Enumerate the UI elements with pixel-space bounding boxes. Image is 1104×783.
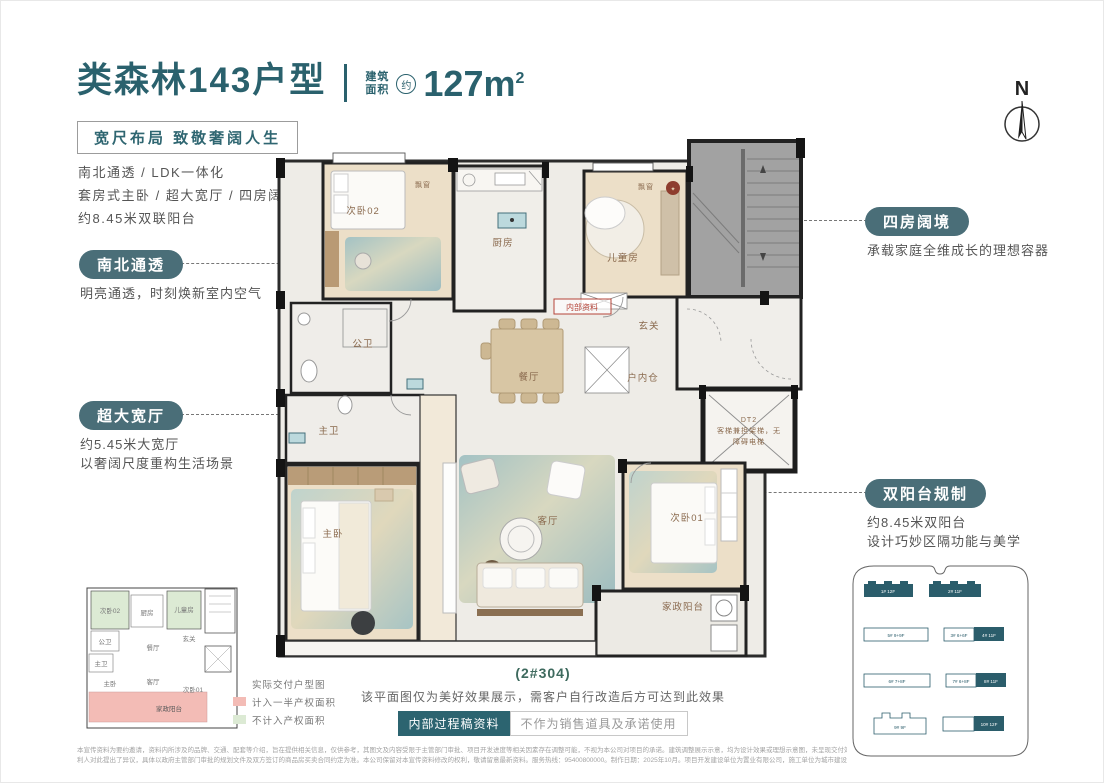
coffee-table bbox=[500, 518, 542, 560]
bay-window-label: 飘窗 bbox=[638, 182, 654, 191]
site-building-10: 10# 12F bbox=[943, 716, 1004, 731]
desc-double-balcony: 约8.45米双阳台 设计巧妙区隔功能与美学 bbox=[867, 513, 1021, 551]
wardrobe bbox=[661, 191, 679, 275]
keyplan-label: 主卧 bbox=[104, 679, 118, 688]
elevator-label-1: DT2 bbox=[741, 417, 757, 424]
chair bbox=[355, 253, 371, 269]
room-dining: 餐厅 bbox=[481, 319, 563, 403]
badge-internal-draft: 内部过程稿资料 bbox=[398, 711, 509, 736]
badge-wide-hall: 超大宽厅 bbox=[79, 401, 183, 430]
keyplan-label: 次卧02 bbox=[100, 606, 121, 615]
dining-table bbox=[491, 329, 563, 393]
desk bbox=[325, 231, 339, 287]
compass-north-label: N bbox=[1015, 78, 1029, 100]
badge-north-south: 南北通透 bbox=[79, 250, 183, 279]
wardrobe bbox=[721, 469, 737, 541]
svg-text:10# 12F: 10# 12F bbox=[981, 722, 998, 727]
room-label-guest-bath: 公卫 bbox=[352, 339, 373, 350]
bay-window-label: 飘窗 bbox=[415, 180, 431, 189]
nightstand bbox=[375, 489, 393, 501]
svg-text:8# 11F: 8# 11F bbox=[984, 679, 998, 684]
badge-four-rooms: 四房阔境 bbox=[865, 207, 969, 236]
key-plan: 次卧02 厨房 儿童房 公卫 餐厅 玄关 主卫 主卧 客厅 次卧01 家政阳台 bbox=[79, 584, 241, 734]
room-label-master-bath: 主卫 bbox=[318, 425, 339, 437]
site-building-3: 3# 6+6F bbox=[944, 628, 974, 641]
keyplan-label: 次卧01 bbox=[183, 685, 204, 694]
room-guest-bath: 公卫 bbox=[291, 303, 391, 393]
internal-material-stamp: 内部资料 bbox=[554, 299, 611, 314]
room-service-balcony: 家政阳台 bbox=[596, 591, 746, 656]
keyplan-label: 餐厅 bbox=[147, 643, 161, 652]
stairwell bbox=[689, 141, 801, 297]
south-ledge bbox=[279, 641, 596, 656]
svg-text:4# 11F: 4# 11F bbox=[982, 633, 996, 638]
site-plan: 1# 12F 2# 11F 5# 9+9F 3# 6+6F 4# 11F 6# … bbox=[844, 553, 1044, 768]
keyplan-stair bbox=[205, 589, 235, 633]
room-label-master: 主卧 bbox=[322, 528, 343, 540]
site-building-2: 2# 11F bbox=[929, 581, 981, 597]
elevator-label-2: 客梯兼担架梯，无 bbox=[717, 426, 781, 435]
toilet bbox=[301, 360, 317, 382]
footer-badges: 内部过程稿资料 不作为销售道具及承诺使用 bbox=[263, 711, 823, 736]
keyplan-label: 主卫 bbox=[95, 659, 109, 668]
site-building-7: 7# 6+8F bbox=[946, 674, 976, 687]
svg-text:9# 9F: 9# 9F bbox=[894, 725, 906, 730]
blanket bbox=[339, 503, 369, 609]
page-title: 类森林143户型 bbox=[77, 59, 326, 103]
desc-wide-hall: 约5.45米大宽厅 以奢阔尺度重构生活场景 bbox=[80, 435, 234, 473]
approx-circle-icon: 约 bbox=[396, 74, 416, 94]
site-building-8: 8# 11F bbox=[976, 673, 1006, 687]
disclaimer-line2: 利人对此提出了异议，具体以政府主管部门审批的规划文件及双方签订的商品房买卖合同约… bbox=[77, 756, 847, 766]
site-building-4: 4# 11F bbox=[974, 627, 1004, 641]
room-label-bedroom2: 次卧02 bbox=[346, 205, 380, 217]
svg-text:6# 7+8F: 6# 7+8F bbox=[889, 679, 906, 684]
room-label-bedroom1: 次卧01 bbox=[670, 512, 704, 524]
washer-icon bbox=[711, 595, 737, 621]
main-floorplan: DT2 客梯兼担架梯，无 障碍电梯 次卧02 飘窗 厨房 bbox=[263, 133, 823, 658]
room-label-storage: 户内仓 bbox=[627, 372, 659, 384]
svg-text:7# 6+8F: 7# 6+8F bbox=[953, 679, 970, 684]
wardrobe bbox=[288, 467, 416, 485]
elevator-shaft: DT2 客梯兼担架梯，无 障碍电梯 bbox=[703, 389, 795, 471]
site-building-9: 9# 9F bbox=[874, 713, 926, 734]
header: 类森林143户型 建筑 面积 约 127m2 bbox=[77, 59, 524, 105]
room-label-kitchen: 厨房 bbox=[492, 237, 513, 249]
bay-window bbox=[333, 153, 405, 163]
title-divider bbox=[344, 64, 347, 102]
legend-swatch-green bbox=[233, 715, 246, 724]
stamp-text: 内部资料 bbox=[566, 302, 598, 312]
keyplan-label: 客厅 bbox=[147, 677, 161, 686]
svg-text:5# 9+9F: 5# 9+9F bbox=[888, 633, 905, 638]
unit-number: (2#304) bbox=[263, 665, 823, 681]
bay-window bbox=[593, 163, 653, 171]
keyplan-label: 玄关 bbox=[183, 634, 197, 643]
tv-console bbox=[443, 463, 456, 613]
site-building-6: 6# 7+8F bbox=[864, 674, 930, 687]
cabinet bbox=[711, 625, 737, 651]
disclaimer: 本宣传资料为要约邀请，资料内所涉及的品牌、交通、配套等介绍，旨在提供相关信息，仅… bbox=[77, 746, 847, 766]
keyplan-label: 家政阳台 bbox=[156, 704, 182, 713]
keyplan-label: 儿童房 bbox=[174, 605, 194, 614]
site-building-1: 1# 12F bbox=[864, 581, 913, 597]
stair-lobby bbox=[677, 297, 801, 389]
crib bbox=[585, 197, 625, 229]
sink bbox=[298, 313, 310, 325]
floorplan-marketing-page: 类森林143户型 建筑 面积 约 127m2 宽尺布局 致敬奢阔人生 南北通透 … bbox=[0, 0, 1104, 783]
sink bbox=[407, 379, 423, 389]
room-label-service-balcony: 家政阳台 bbox=[662, 601, 704, 613]
svg-text:✦: ✦ bbox=[670, 186, 675, 193]
room-living: 客厅 bbox=[443, 455, 615, 616]
room-label-kids: 儿童房 bbox=[607, 252, 639, 264]
desc-north-south: 明亮通透，时刻焕新室内空气 bbox=[80, 284, 262, 303]
room-label-dining: 餐厅 bbox=[518, 371, 539, 383]
room-label-living: 客厅 bbox=[537, 515, 558, 527]
plan-note: 该平面图仅为美好效果展示，需客户自行改造后方可达到此效果 bbox=[203, 688, 883, 705]
beanbag bbox=[351, 611, 375, 635]
room-kitchen: 厨房 bbox=[454, 166, 545, 311]
badge-double-balcony: 双阳台规制 bbox=[865, 479, 986, 508]
sofa-console bbox=[477, 609, 583, 616]
sink bbox=[289, 433, 305, 443]
keyplan-label: 公卫 bbox=[99, 638, 113, 646]
room-bedroom2: 次卧02 飘窗 bbox=[323, 153, 453, 299]
area-value: 127m2 bbox=[423, 63, 524, 105]
svg-text:3# 6+6F: 3# 6+6F bbox=[951, 633, 968, 638]
compass-icon: N bbox=[999, 77, 1045, 149]
room-master-bedroom: 主卧 bbox=[286, 465, 418, 641]
room-kids: ✦ 飘窗 儿童房 bbox=[584, 163, 687, 297]
room-label-foyer: 玄关 bbox=[638, 320, 659, 332]
svg-text:2# 11F: 2# 11F bbox=[948, 589, 962, 594]
badge-not-for-sales: 不作为销售道具及承诺使用 bbox=[510, 711, 688, 736]
area-label: 建筑 面积 bbox=[365, 71, 389, 97]
toilet bbox=[338, 396, 352, 414]
svg-text:1# 12F: 1# 12F bbox=[881, 589, 895, 594]
keyplan-balcony-pink bbox=[89, 692, 207, 722]
room-bedroom1: 次卧01 bbox=[623, 463, 745, 589]
keyplan-label: 厨房 bbox=[141, 608, 154, 617]
armchair bbox=[546, 460, 585, 499]
elevator-label-3: 障碍电梯 bbox=[733, 437, 765, 446]
disclaimer-line1: 本宣传资料为要约邀请，资料内所涉及的品牌、交通、配套等介绍，旨在提供相关信息，仅… bbox=[77, 746, 847, 756]
site-building-5: 5# 9+9F bbox=[864, 628, 928, 641]
desc-four-rooms: 承载家庭全维成长的理想容器 bbox=[867, 241, 1049, 260]
